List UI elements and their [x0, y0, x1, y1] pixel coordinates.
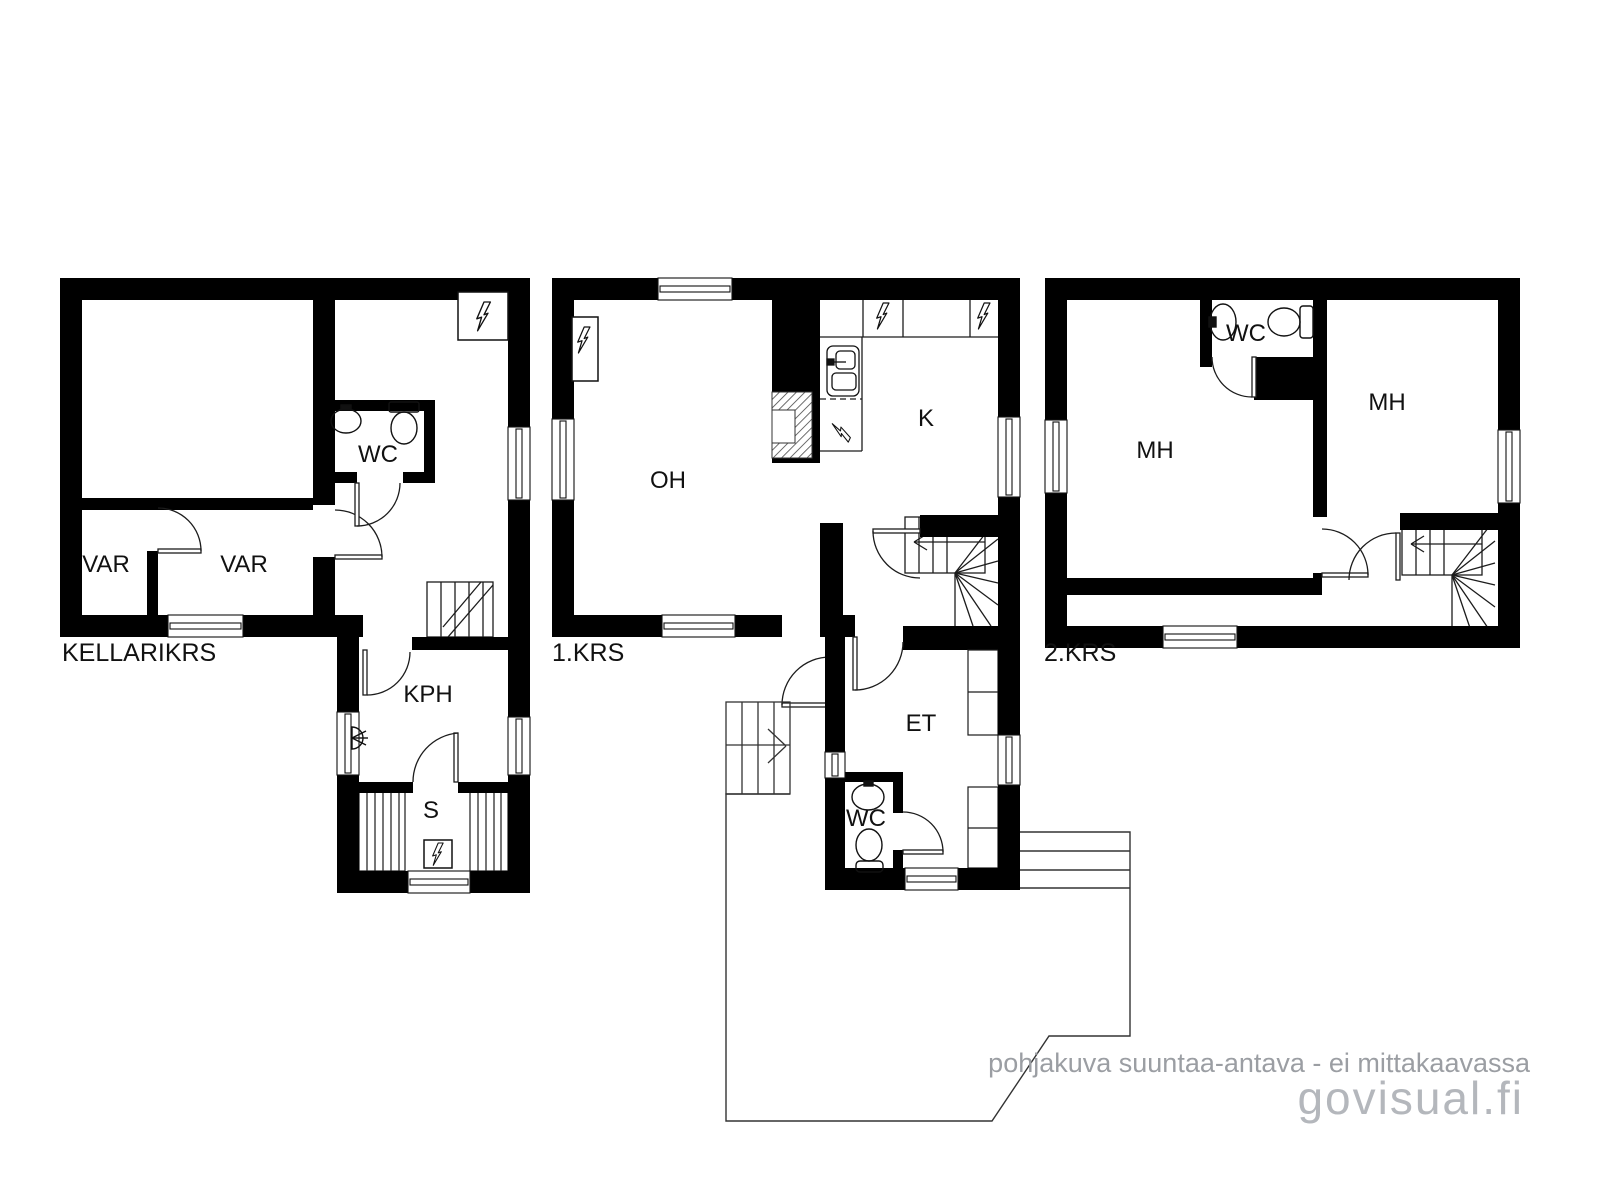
door-mh-left	[1322, 529, 1368, 577]
room-label-et: ET	[906, 710, 937, 737]
room-label-oh: OH	[650, 467, 686, 494]
room-label-var-left: VAR	[82, 551, 130, 578]
door-et-wc	[903, 812, 943, 854]
door-kitchen-stairs	[873, 529, 920, 578]
plan-label-floor2: 2.KRS	[1044, 639, 1116, 667]
window	[168, 615, 243, 637]
room-label-sauna: S	[423, 797, 439, 824]
room-label-wc2: WC	[1226, 320, 1266, 347]
door-et	[853, 637, 903, 690]
window	[508, 717, 530, 775]
floorplan-drawing: VAR VAR WC KPH S KELLARIKRS	[0, 0, 1600, 1200]
door-var	[158, 508, 201, 553]
door-wc2	[1212, 357, 1256, 397]
door-wc	[355, 483, 400, 526]
floor1-plan: OH K 1.KRS	[552, 278, 1020, 707]
door-sauna	[413, 733, 458, 782]
room-label-kph: KPH	[403, 681, 452, 708]
basement-plan: VAR VAR WC KPH S KELLARIKRS	[60, 278, 530, 893]
plan-label-basement: KELLARIKRS	[62, 639, 216, 667]
toilet-icon	[856, 829, 883, 872]
floor2-plan: MH MH WC 2.KRS	[1044, 278, 1520, 667]
window	[998, 735, 1020, 785]
plan-label-floor1: 1.KRS	[552, 639, 624, 667]
basement-stairs-icon	[427, 582, 493, 637]
electric-panel-icon	[572, 317, 598, 381]
window	[658, 278, 732, 300]
staircase-floor2	[1402, 519, 1495, 628]
room-label-mh-right: MH	[1368, 389, 1405, 416]
window	[905, 868, 958, 890]
window	[1045, 420, 1067, 493]
fridge-lightning-icon	[978, 303, 990, 329]
exterior-stairs-icon	[726, 702, 790, 794]
watermark-logo: govisual.fi	[1297, 1072, 1524, 1124]
room-label-wc-basement: WC	[358, 441, 398, 468]
room-label-var-right: VAR	[220, 551, 268, 578]
doorway-hall-bigroom	[313, 505, 335, 557]
entry-block: ET WC	[825, 637, 1020, 890]
window	[337, 712, 359, 775]
chimney-fireplace	[772, 292, 820, 463]
sauna-bench-right	[470, 785, 508, 871]
closets	[968, 650, 998, 868]
sauna-bench-left	[359, 785, 405, 871]
toilet-icon	[1268, 306, 1313, 338]
stove-lightning-icon	[877, 303, 889, 329]
room-label-wc-et: WC	[846, 805, 886, 832]
dishwasher-lightning-icon	[828, 423, 853, 442]
window	[662, 615, 735, 637]
window	[1163, 626, 1237, 648]
floorplan-sheet: VAR VAR WC KPH S KELLARIKRS	[0, 0, 1600, 1200]
door-entrance-exterior	[782, 657, 830, 707]
room-label-mh-left: MH	[1136, 437, 1173, 464]
floor2-windows	[1045, 420, 1520, 648]
kitchen-sink-icon	[827, 346, 859, 396]
window	[1498, 430, 1520, 503]
window	[825, 752, 845, 778]
sauna-heater-icon	[424, 840, 452, 868]
room-label-k: K	[918, 405, 934, 432]
window	[508, 427, 530, 500]
window	[408, 871, 470, 893]
electric-panel-icon	[458, 292, 508, 340]
window	[552, 419, 574, 500]
kitchen-counter	[820, 300, 998, 451]
floor2-walls	[1045, 278, 1520, 648]
basement-walls	[60, 278, 530, 893]
window	[998, 417, 1020, 497]
